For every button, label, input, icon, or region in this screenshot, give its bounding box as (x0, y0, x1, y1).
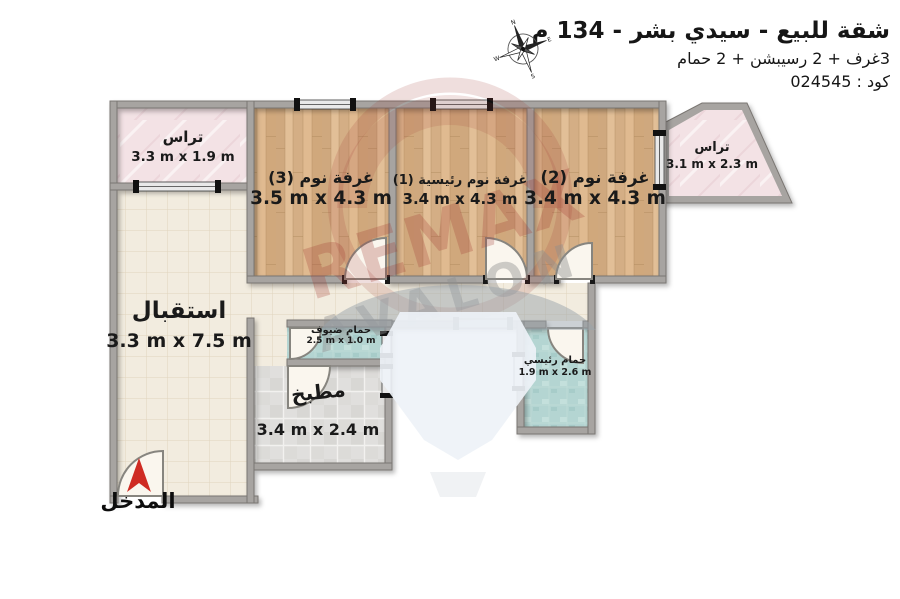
compass-rose-icon: N E S W (492, 16, 554, 82)
window-terrace-left (133, 180, 221, 193)
balloon-envelope (380, 312, 536, 460)
compass-w: W (493, 55, 501, 64)
compass-n: N (510, 19, 517, 27)
page-title: شقة للبيع - سيدي بشر - 134 م (532, 18, 890, 46)
compass-s: S (530, 73, 536, 81)
terrace-right-shape (662, 103, 792, 203)
floorplan-page: REMAX AVALON شقة للبيع - سيدي بشر - 134 … (0, 0, 900, 599)
entrance-label: المدخل (84, 489, 192, 513)
compass-e: E (547, 36, 553, 44)
terrace-left-floor (117, 108, 247, 183)
listing-code: كود : 024545 (532, 72, 890, 92)
balloon-basket (430, 472, 486, 497)
reception-floor (117, 190, 247, 496)
page-subtitle: 3غرف + 2 رسيبشن + 2 حمام (532, 49, 890, 69)
vestibule-floor (254, 321, 287, 366)
window-bedroom-3 (294, 98, 356, 111)
header: شقة للبيع - سيدي بشر - 134 م 3غرف + 2 رس… (532, 18, 890, 92)
window-bedroom-2-terrace (653, 130, 666, 190)
